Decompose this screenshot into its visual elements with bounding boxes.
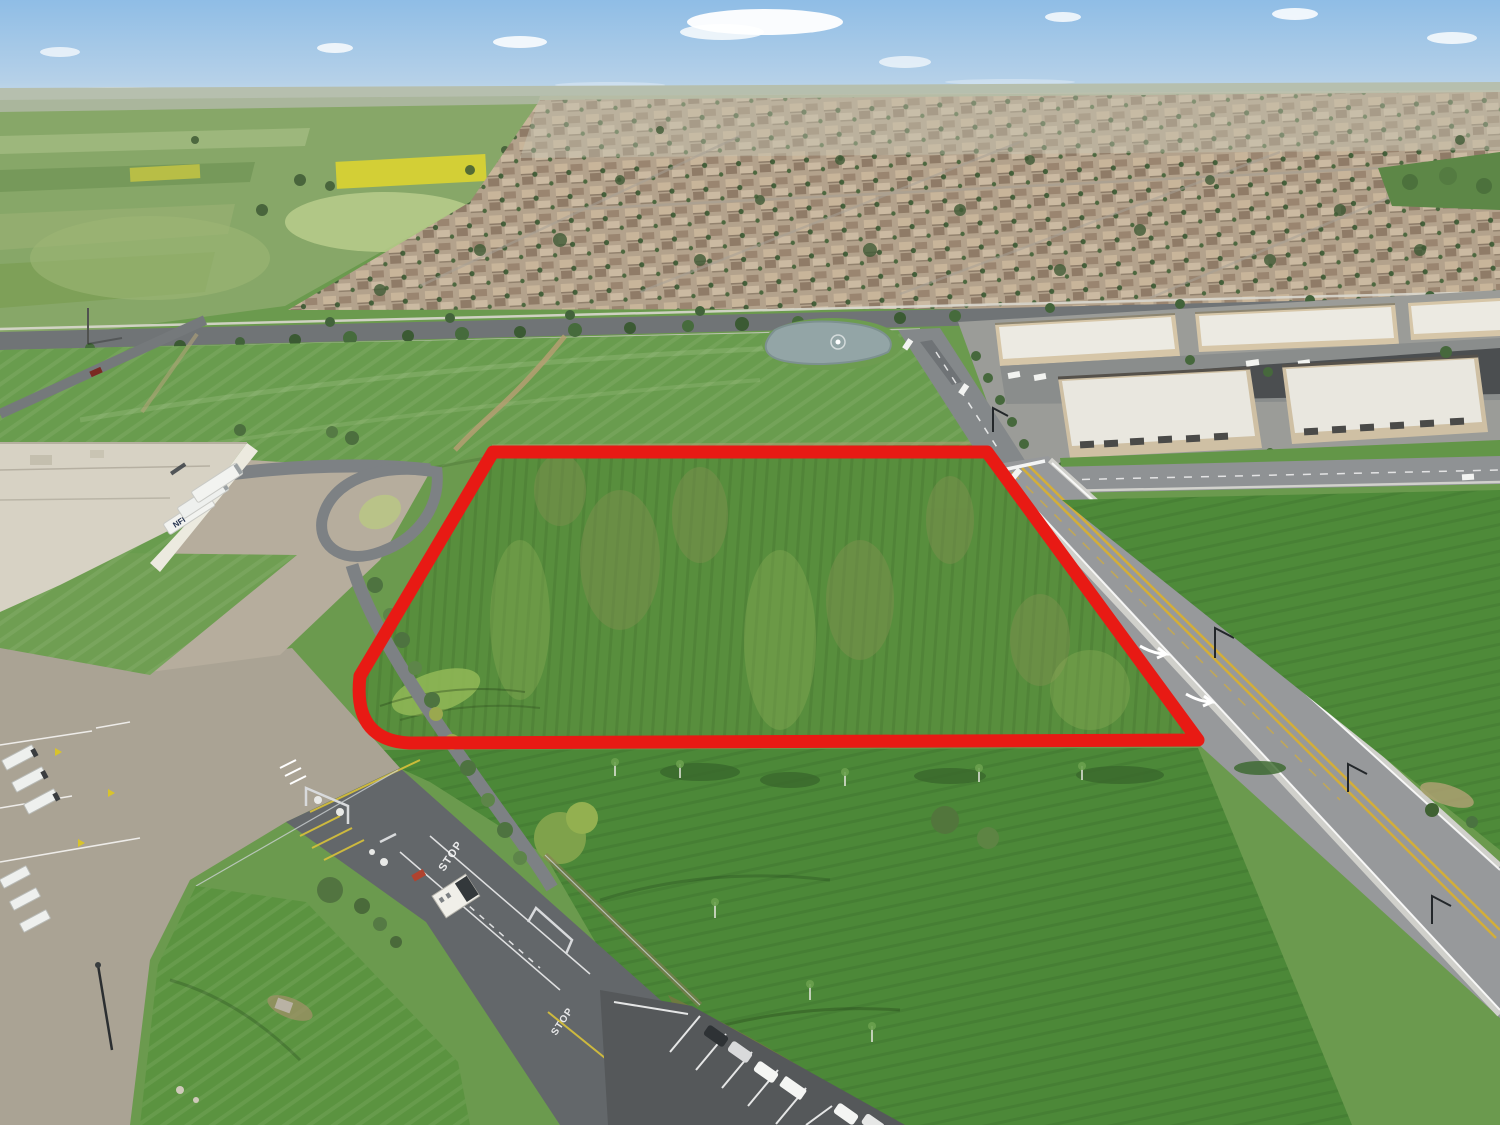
aerial-photo: NFI [0, 0, 1500, 1125]
gate-lawn [140, 886, 470, 1125]
pond [762, 318, 902, 370]
fountain [836, 340, 841, 345]
